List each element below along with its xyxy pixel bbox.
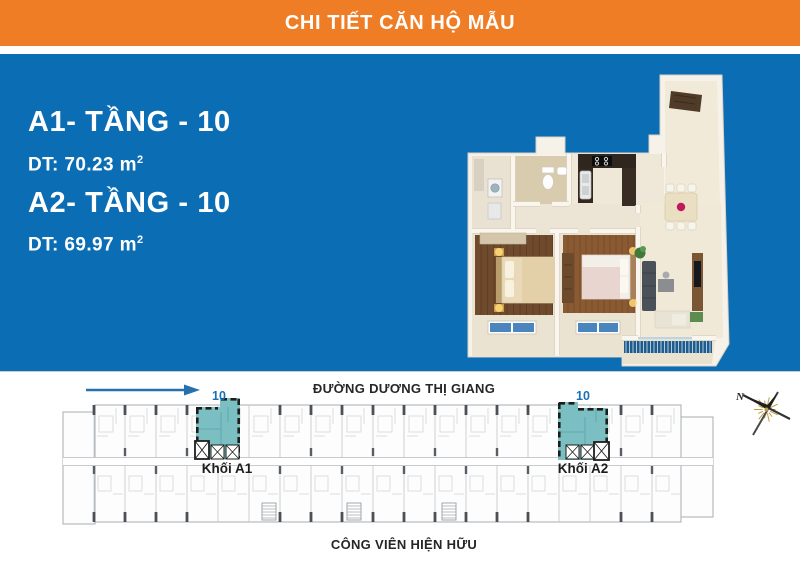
highlighted-block-a1 (195, 398, 240, 459)
block-a1-label: Khối A1 (202, 461, 253, 476)
floorplan-3d-render (450, 55, 800, 371)
siteplan-section: 10 10 Khối A1 Khối A2 ĐƯỜNG DƯƠNG THỊ GI… (0, 371, 800, 563)
highlighted-block-a2 (558, 402, 609, 460)
block-a1-floor: 10 (212, 389, 226, 403)
page-title: CHI TIẾT CĂN HỘ MẪU (285, 12, 515, 35)
unit-a2-title: A2- TẦNG - 10 (28, 187, 231, 220)
street-name-top: ĐƯỜNG DƯƠNG THỊ GIANG (313, 381, 495, 396)
block-a2-floor: 10 (576, 389, 590, 403)
apartment-detail-panel: A1- TẦNG - 10 DT: 70.23 m2 A2- TẦNG - 10… (0, 54, 800, 371)
street-name-bottom: CÔNG VIÊN HIỆN HỮU (331, 537, 477, 552)
unit-a2-area: DT: 69.97 m2 (28, 234, 143, 256)
brochure-page: CHI TIẾT CĂN HỘ MẪU A1- TẦNG - 10 DT: 70… (0, 0, 800, 563)
direction-arrow (86, 385, 200, 396)
compass-north-label: N (735, 391, 745, 403)
unit-a1-area: DT: 70.23 m2 (28, 154, 143, 176)
block-a2-label: Khối A2 (558, 461, 609, 476)
compass-icon: N (735, 391, 790, 435)
unit-a1-title: A1- TẦNG - 10 (28, 106, 231, 139)
siteplan-drawing: 10 10 Khối A1 Khối A2 ĐƯỜNG DƯƠNG THỊ GI… (0, 372, 800, 563)
header-bar: CHI TIẾT CĂN HỘ MẪU (0, 0, 800, 46)
